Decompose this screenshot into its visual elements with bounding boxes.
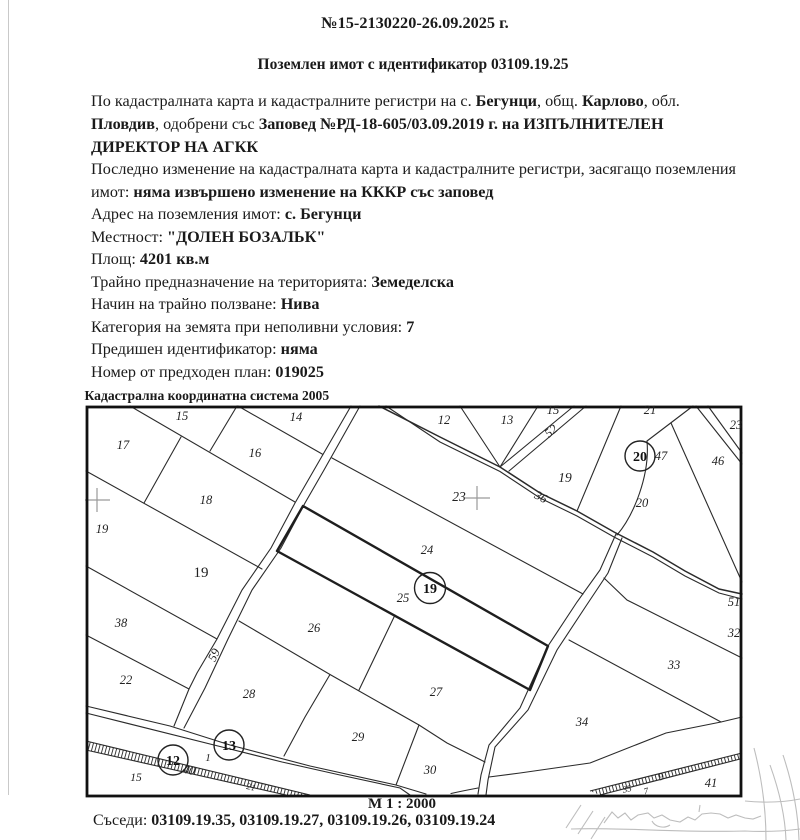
svg-text:13: 13 <box>222 739 236 754</box>
svg-text:33: 33 <box>667 658 681 672</box>
svg-text:46: 46 <box>712 454 725 468</box>
svg-text:22: 22 <box>120 673 133 687</box>
svg-text:23: 23 <box>730 418 743 432</box>
svg-text:12: 12 <box>438 413 451 427</box>
svg-text:41: 41 <box>705 776 718 790</box>
svg-text:15: 15 <box>547 403 560 417</box>
svg-text:15: 15 <box>130 772 142 784</box>
svg-text:38: 38 <box>114 616 128 630</box>
svg-text:24: 24 <box>421 543 434 557</box>
svg-text:47: 47 <box>655 449 668 463</box>
svg-text:19: 19 <box>194 565 209 581</box>
svg-text:34: 34 <box>575 715 589 729</box>
svg-text:19: 19 <box>423 582 437 597</box>
svg-text:21: 21 <box>644 403 657 417</box>
svg-text:20: 20 <box>633 450 647 465</box>
svg-text:23: 23 <box>452 489 466 504</box>
svg-text:18: 18 <box>200 493 213 507</box>
svg-text:26: 26 <box>308 621 321 635</box>
svg-text:13: 13 <box>501 413 514 427</box>
svg-text:51: 51 <box>728 595 741 609</box>
svg-text:17: 17 <box>117 438 130 452</box>
svg-text:15: 15 <box>176 409 189 423</box>
svg-text:28: 28 <box>243 687 256 701</box>
svg-text:14: 14 <box>290 410 303 424</box>
svg-text:1: 1 <box>205 752 211 764</box>
svg-text:32: 32 <box>727 626 741 640</box>
svg-text:12: 12 <box>166 754 180 769</box>
svg-text:27: 27 <box>430 685 443 699</box>
svg-text:30: 30 <box>423 763 437 777</box>
svg-text:29: 29 <box>352 730 365 744</box>
svg-text:19: 19 <box>558 470 572 485</box>
svg-text:25: 25 <box>397 591 410 605</box>
svg-text:19: 19 <box>96 522 109 536</box>
svg-text:16: 16 <box>249 446 262 460</box>
svg-text:20: 20 <box>636 496 649 510</box>
